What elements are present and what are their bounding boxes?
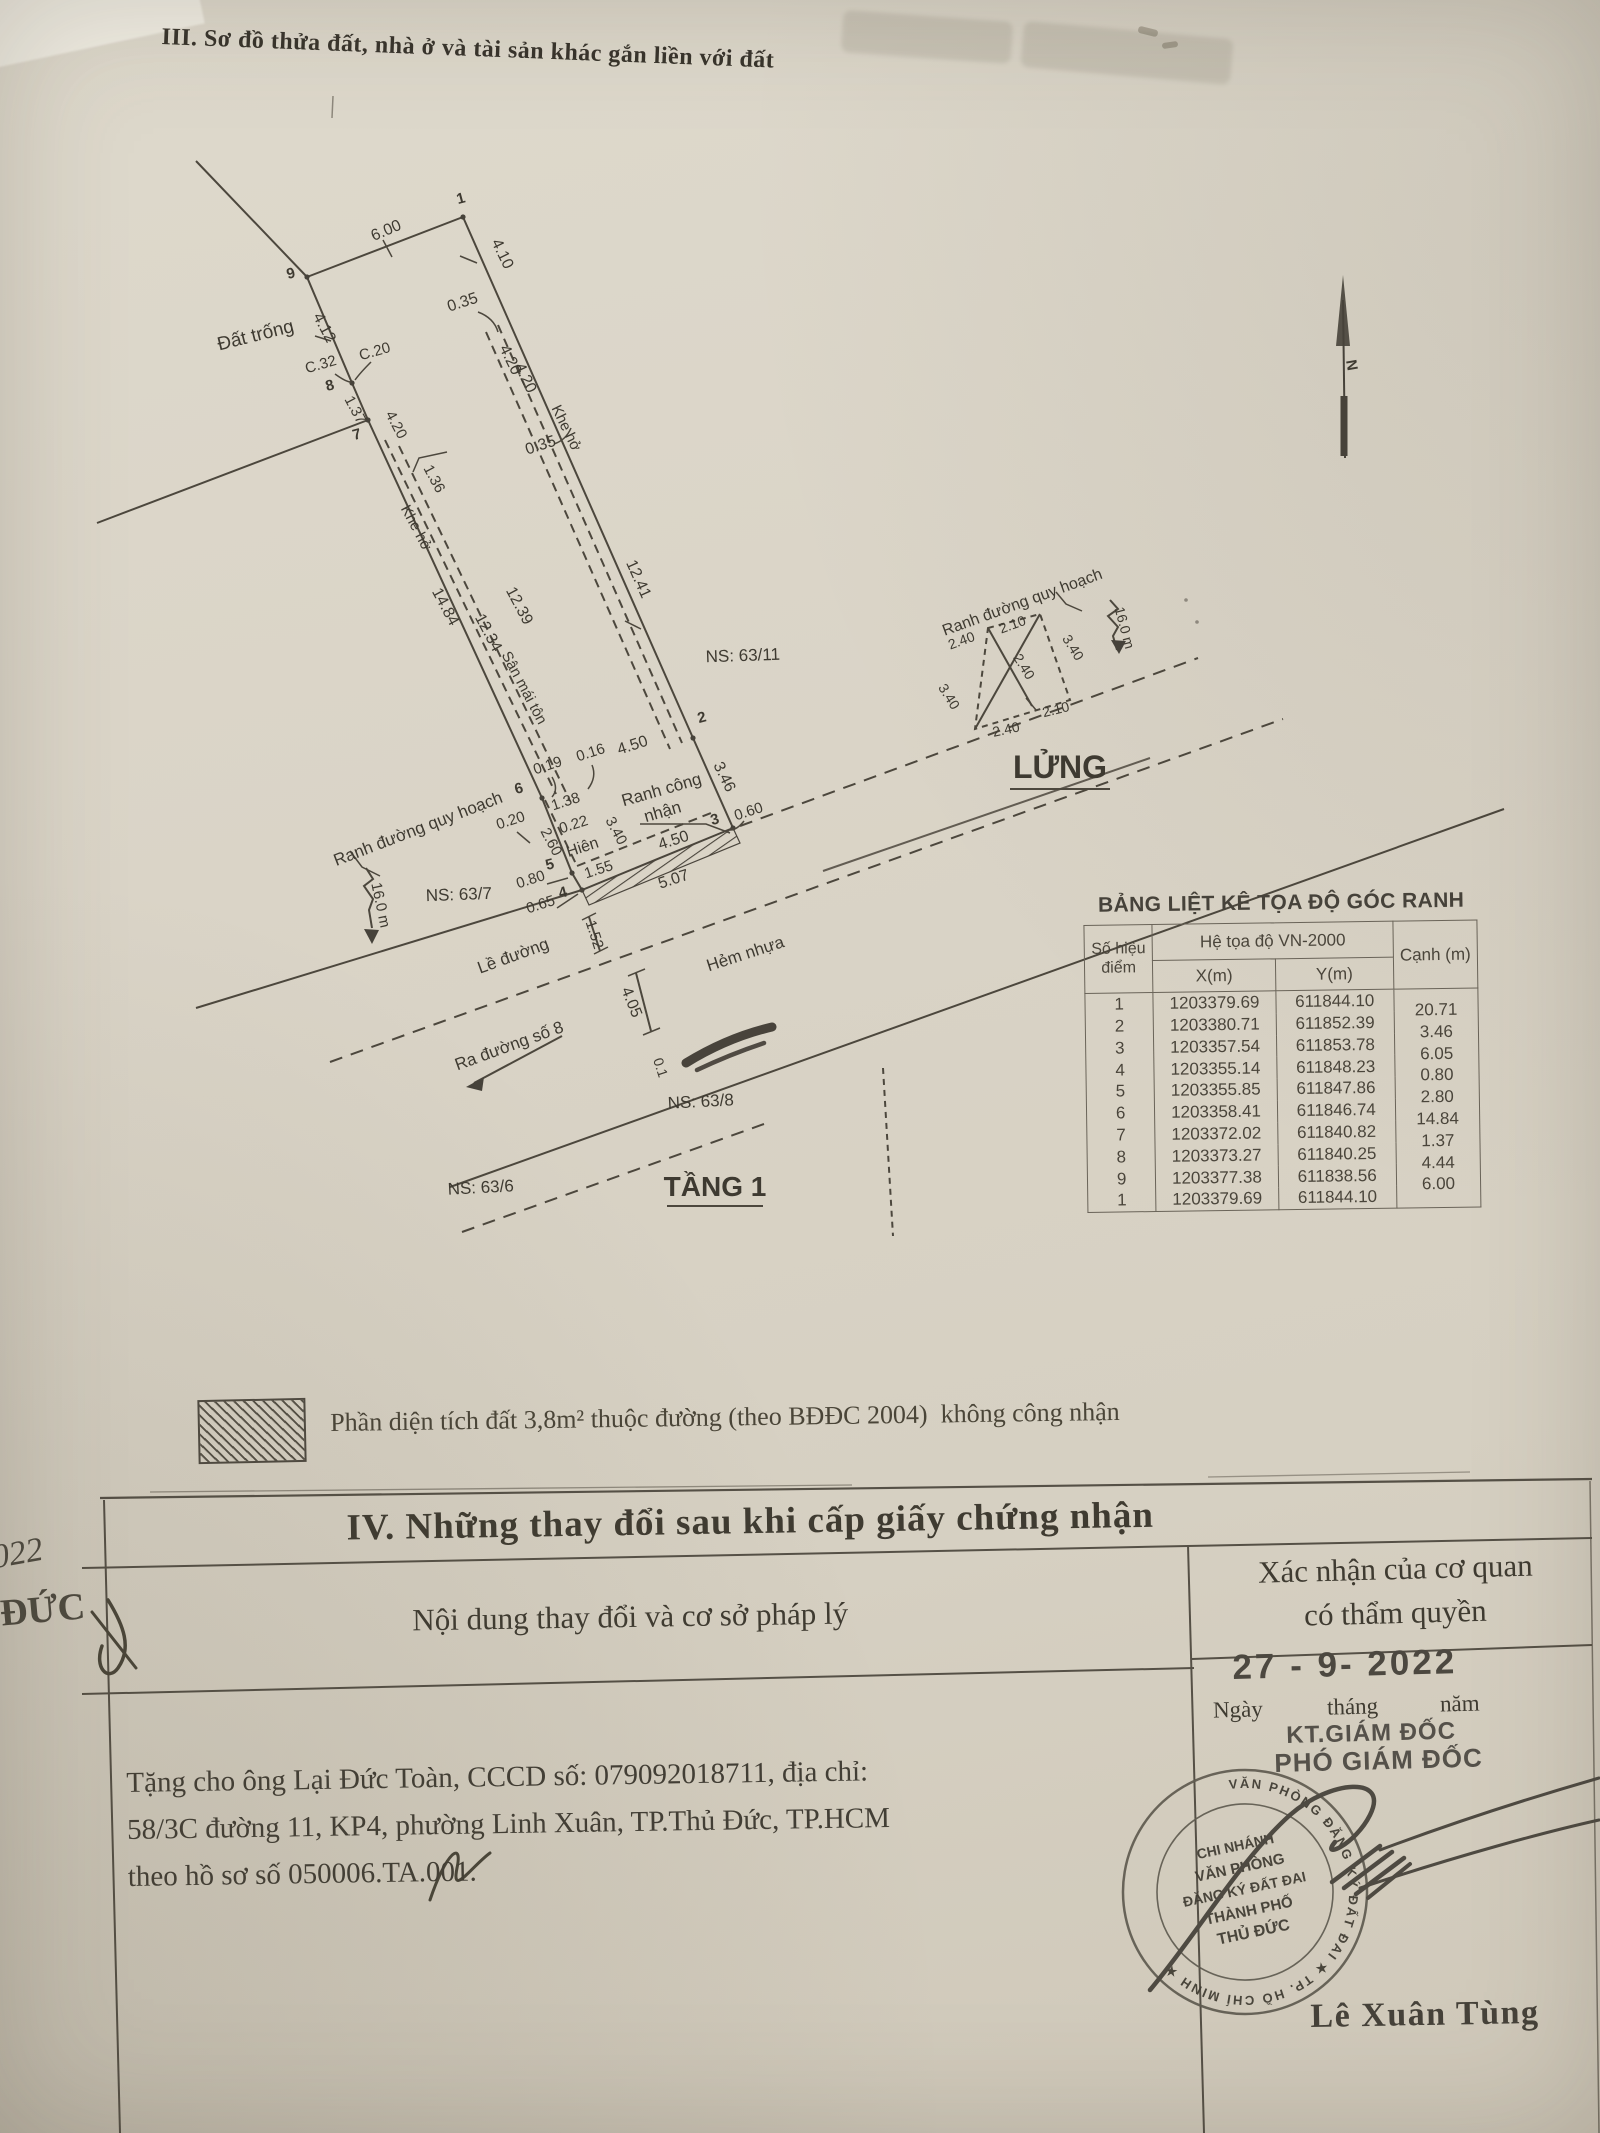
change-content-paragraph: Tặng cho ông Lại Đức Toàn, CCCD số: 0790… [126, 1746, 1048, 1901]
dim-label: 4.20 [382, 408, 411, 442]
point-label: 7 [351, 425, 363, 444]
dim-label: 12.34 [471, 611, 505, 654]
cell-point: 7 [1087, 1124, 1156, 1147]
cell-x: 1203355.85 [1154, 1079, 1277, 1103]
gap-label: Khe hở [397, 502, 435, 553]
edge-length: 3.46 [1395, 1020, 1478, 1043]
cell-x: 1203377.38 [1156, 1166, 1279, 1190]
to-street8-label: Ra đường số 8 [452, 1017, 566, 1074]
margin-signature [92, 1600, 136, 1674]
porch-label: Hiên [564, 835, 601, 861]
point-label: 4 [557, 883, 570, 902]
edge-length: 20.71 [1394, 989, 1478, 1022]
cell-point: 1 [1085, 993, 1154, 1016]
pen-scribble [686, 1027, 772, 1070]
neighbor-parcel-label: NS: 63/7 [425, 884, 492, 905]
office-round-stamp: VĂN PHÒNG ĐĂNG KÝ ĐẤT ĐAI ★ TP. HỒ CHÍ M… [1100, 1747, 1389, 2036]
cell-y: 611840.82 [1277, 1120, 1395, 1143]
edge-length: 14.84 [1396, 1107, 1479, 1130]
point-label: 2 [696, 708, 708, 727]
dim-label: 0.1 [650, 1056, 671, 1080]
edge-length: 2.80 [1396, 1086, 1479, 1109]
point-label: 8 [324, 376, 336, 395]
neighbor-parcel-label: NS: 63/6 [447, 1176, 514, 1198]
cell-point: 1 [1088, 1189, 1157, 1212]
dim-label: 3.40 [1059, 632, 1087, 664]
dim-label: 4.10 [488, 236, 517, 272]
dim-label: 6.00 [369, 217, 404, 245]
edge-length-column: 20.71 3.46 6.05 0.80 2.80 14.84 1.37 4.4… [1394, 988, 1481, 1208]
cell-y: 611847.86 [1277, 1077, 1395, 1100]
dim-label: 0.35 [445, 290, 480, 316]
col-header-edge: Cạnh (m) [1393, 920, 1478, 989]
coordinate-table-title: BẢNG LIỆT KÊ TỌA ĐỘ GÓC RANH [1083, 888, 1479, 918]
dim-label: 12.39 [502, 584, 536, 627]
col-header-y: Y(m) [1275, 957, 1394, 991]
point-label: 9 [285, 264, 297, 283]
cell-y: 611838.56 [1278, 1164, 1396, 1187]
cell-y: 611844.10 [1278, 1186, 1396, 1210]
dim-label: 3.46 [710, 759, 739, 795]
deputy-director-line: PHÓ GIÁM ĐỐC [1274, 1743, 1483, 1779]
cell-y: 611852.39 [1276, 1011, 1394, 1034]
date-word-day: Ngày [1213, 1696, 1263, 1723]
dim-label: 1.36 [420, 462, 449, 496]
scanned-land-certificate-page: III. Sơ đồ thửa đất, nhà ở và tài sản kh… [0, 0, 1600, 2133]
director-signature [1150, 1778, 1599, 1990]
marker-label: C.32 [303, 352, 338, 377]
cell-y: 611853.78 [1276, 1033, 1394, 1056]
coordinate-table: BẢNG LIỆT KÊ TỌA ĐỘ GÓC RANH Số hiệu điể… [1083, 888, 1483, 1212]
dim-label: 14.84 [428, 585, 462, 628]
north-label: N [1342, 358, 1361, 372]
cell-point: 9 [1087, 1167, 1156, 1190]
marker-label: C.20 [357, 339, 392, 364]
dim-label: 0.16 [574, 740, 607, 765]
point-label: 1 [455, 189, 467, 208]
cell-point: 4 [1086, 1058, 1155, 1081]
dim-label: 3.40 [602, 814, 631, 848]
date-word-month: tháng [1327, 1693, 1379, 1720]
col-header-x: X(m) [1153, 959, 1276, 993]
col-header-system: Hệ tọa độ VN-2000 [1152, 921, 1393, 960]
cell-point: 6 [1086, 1102, 1155, 1125]
cell-y: 611840.25 [1278, 1142, 1396, 1165]
dim-label: 0.80 [514, 867, 547, 892]
dim-label: 0.19 [531, 753, 564, 778]
mezzanine-title: LỬNG [1013, 749, 1107, 785]
edge-length: 6.00 [1397, 1173, 1480, 1196]
cell-point: 2 [1085, 1015, 1154, 1038]
col-header-point: Số hiệu điểm [1084, 925, 1153, 994]
table-row: 1 1203379.69 611844.10 20.71 3.46 6.05 0… [1085, 988, 1478, 1016]
cell-x: 1203380.71 [1154, 1013, 1277, 1037]
dim-label: 2.10 [1041, 698, 1072, 720]
cell-point: 8 [1087, 1146, 1156, 1169]
dim-label: 0.22 [557, 812, 590, 837]
road-edge-label: Lề đường [475, 934, 552, 977]
floor1-title: TẦNG 1 [664, 1171, 767, 1202]
margin-stamp-fragment: ĐỨC [0, 1584, 87, 1635]
dim-label: 4.50 [615, 733, 650, 759]
dim-label: 2.40 [1010, 651, 1038, 683]
cell-y: 611846.74 [1277, 1099, 1395, 1122]
point-label: 6 [513, 779, 525, 798]
dim-label: 0.20 [494, 808, 527, 833]
edge-length: 6.05 [1395, 1042, 1478, 1065]
neighbor-parcel-label: NS: 63/11 [705, 645, 780, 667]
cell-x: 1203379.69 [1153, 991, 1276, 1015]
vacant-land-label: Đất trống [215, 316, 296, 355]
cell-x: 1203373.27 [1155, 1144, 1278, 1168]
neighbor-parcel-label: NS: 63/8 [667, 1090, 734, 1112]
dim-label: 3.40 [935, 681, 963, 713]
cell-y: 611844.10 [1276, 989, 1394, 1013]
cell-point: 3 [1086, 1037, 1155, 1060]
date-word-year: năm [1440, 1690, 1480, 1717]
cell-x: 1203358.41 [1155, 1100, 1278, 1124]
date-stamp: 27 - 9- 2022 [1232, 1642, 1458, 1688]
edge-length: 0.80 [1395, 1064, 1478, 1087]
cell-point: 5 [1086, 1080, 1155, 1103]
cell-y: 611848.23 [1276, 1055, 1394, 1078]
edge-length: 1.37 [1396, 1129, 1479, 1152]
dim-label: 0.35 [523, 433, 558, 459]
signer-name: Lê Xuân Tùng [1280, 1993, 1571, 2036]
cell-x: 1203357.54 [1154, 1035, 1277, 1059]
dim-label: 1.52 [582, 918, 607, 951]
dim-label: 12.41 [622, 557, 654, 601]
alley-label: Hẻm nhựa [704, 932, 787, 975]
dim-label: 2.40 [991, 718, 1021, 739]
cell-x: 1203355.14 [1154, 1057, 1277, 1081]
dim-label: 0.60 [732, 799, 765, 824]
dim-label: 0.65 [524, 892, 557, 917]
dim-label: 4.20 [511, 360, 540, 396]
point-label: 5 [544, 855, 556, 874]
edge-length: 4.44 [1396, 1151, 1479, 1174]
planned-road-boundary-label: Ranh đường quy hoạch [331, 788, 505, 870]
cell-x: 1203372.02 [1155, 1122, 1278, 1146]
cell-x: 1203379.69 [1156, 1187, 1279, 1211]
